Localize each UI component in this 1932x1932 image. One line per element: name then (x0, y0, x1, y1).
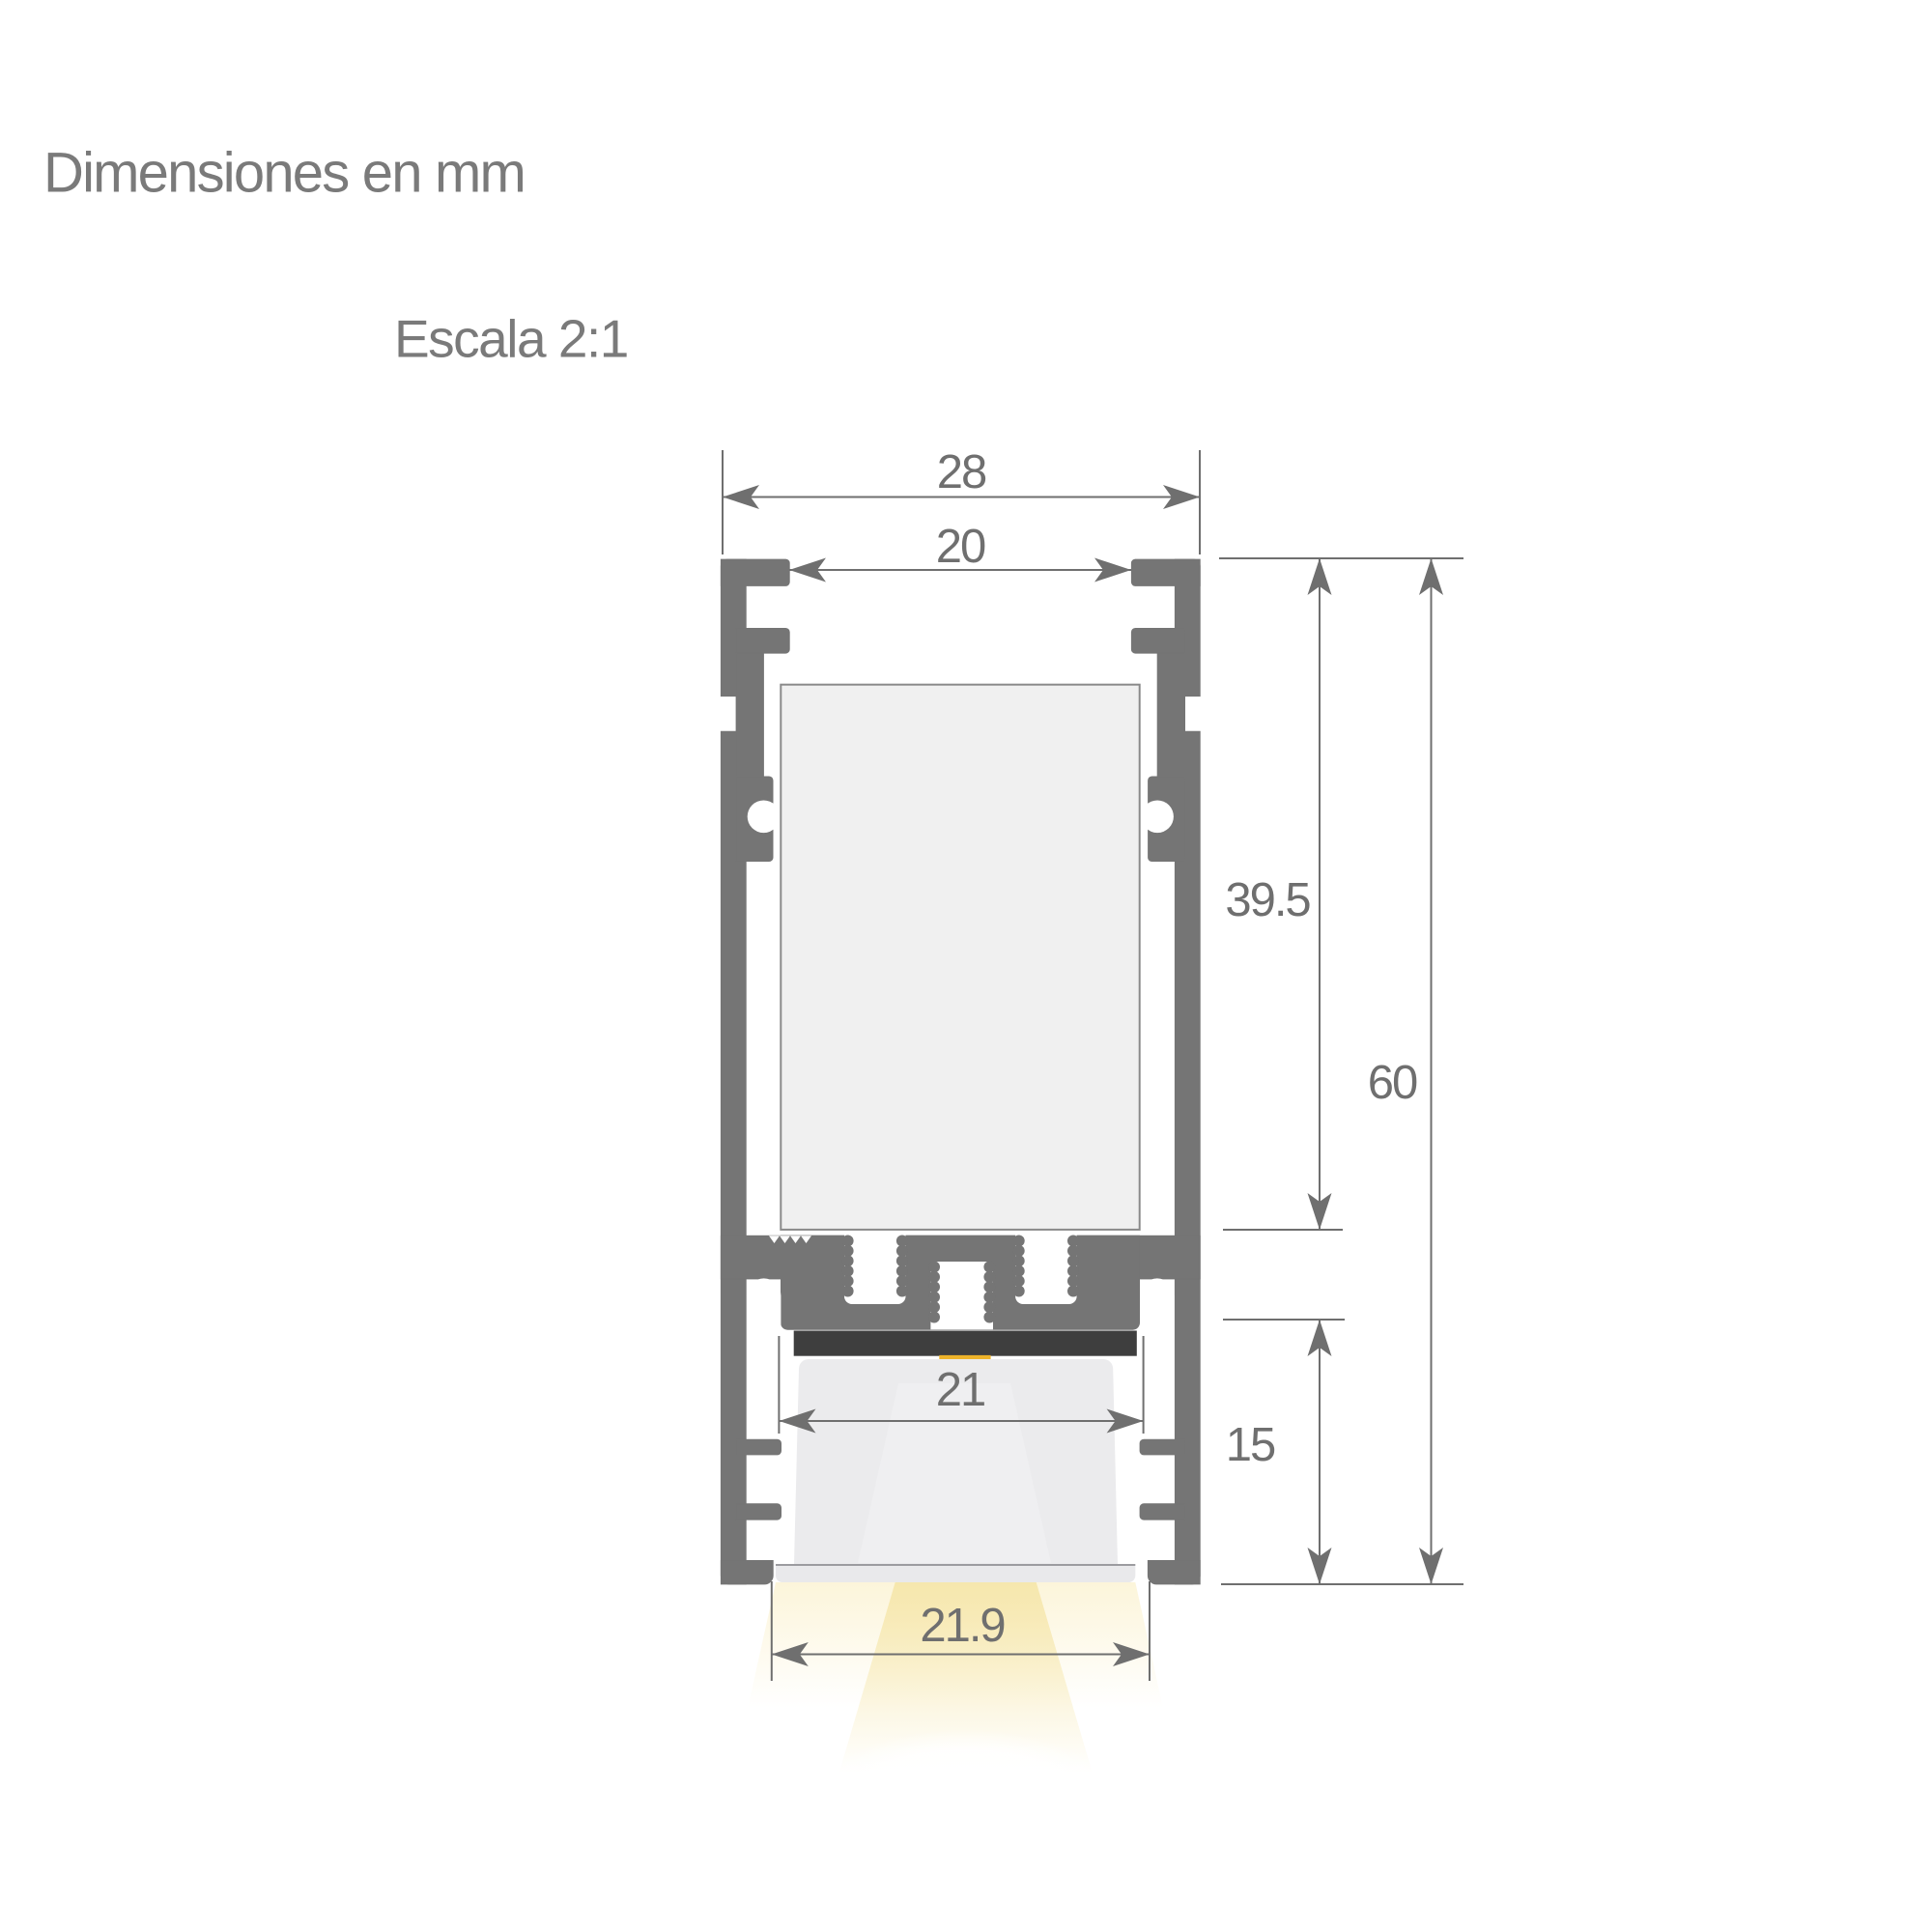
svg-text:Escala 2:1: Escala 2:1 (394, 309, 628, 369)
svg-text:15: 15 (1226, 1419, 1275, 1471)
svg-text:21.9: 21.9 (920, 1600, 1004, 1652)
svg-text:21: 21 (936, 1364, 985, 1416)
svg-text:28: 28 (937, 446, 986, 498)
svg-text:Dimensiones en mm: Dimensiones en mm (43, 142, 525, 205)
svg-text:20: 20 (936, 521, 985, 573)
svg-text:39.5: 39.5 (1225, 874, 1310, 926)
svg-text:60: 60 (1368, 1057, 1417, 1109)
